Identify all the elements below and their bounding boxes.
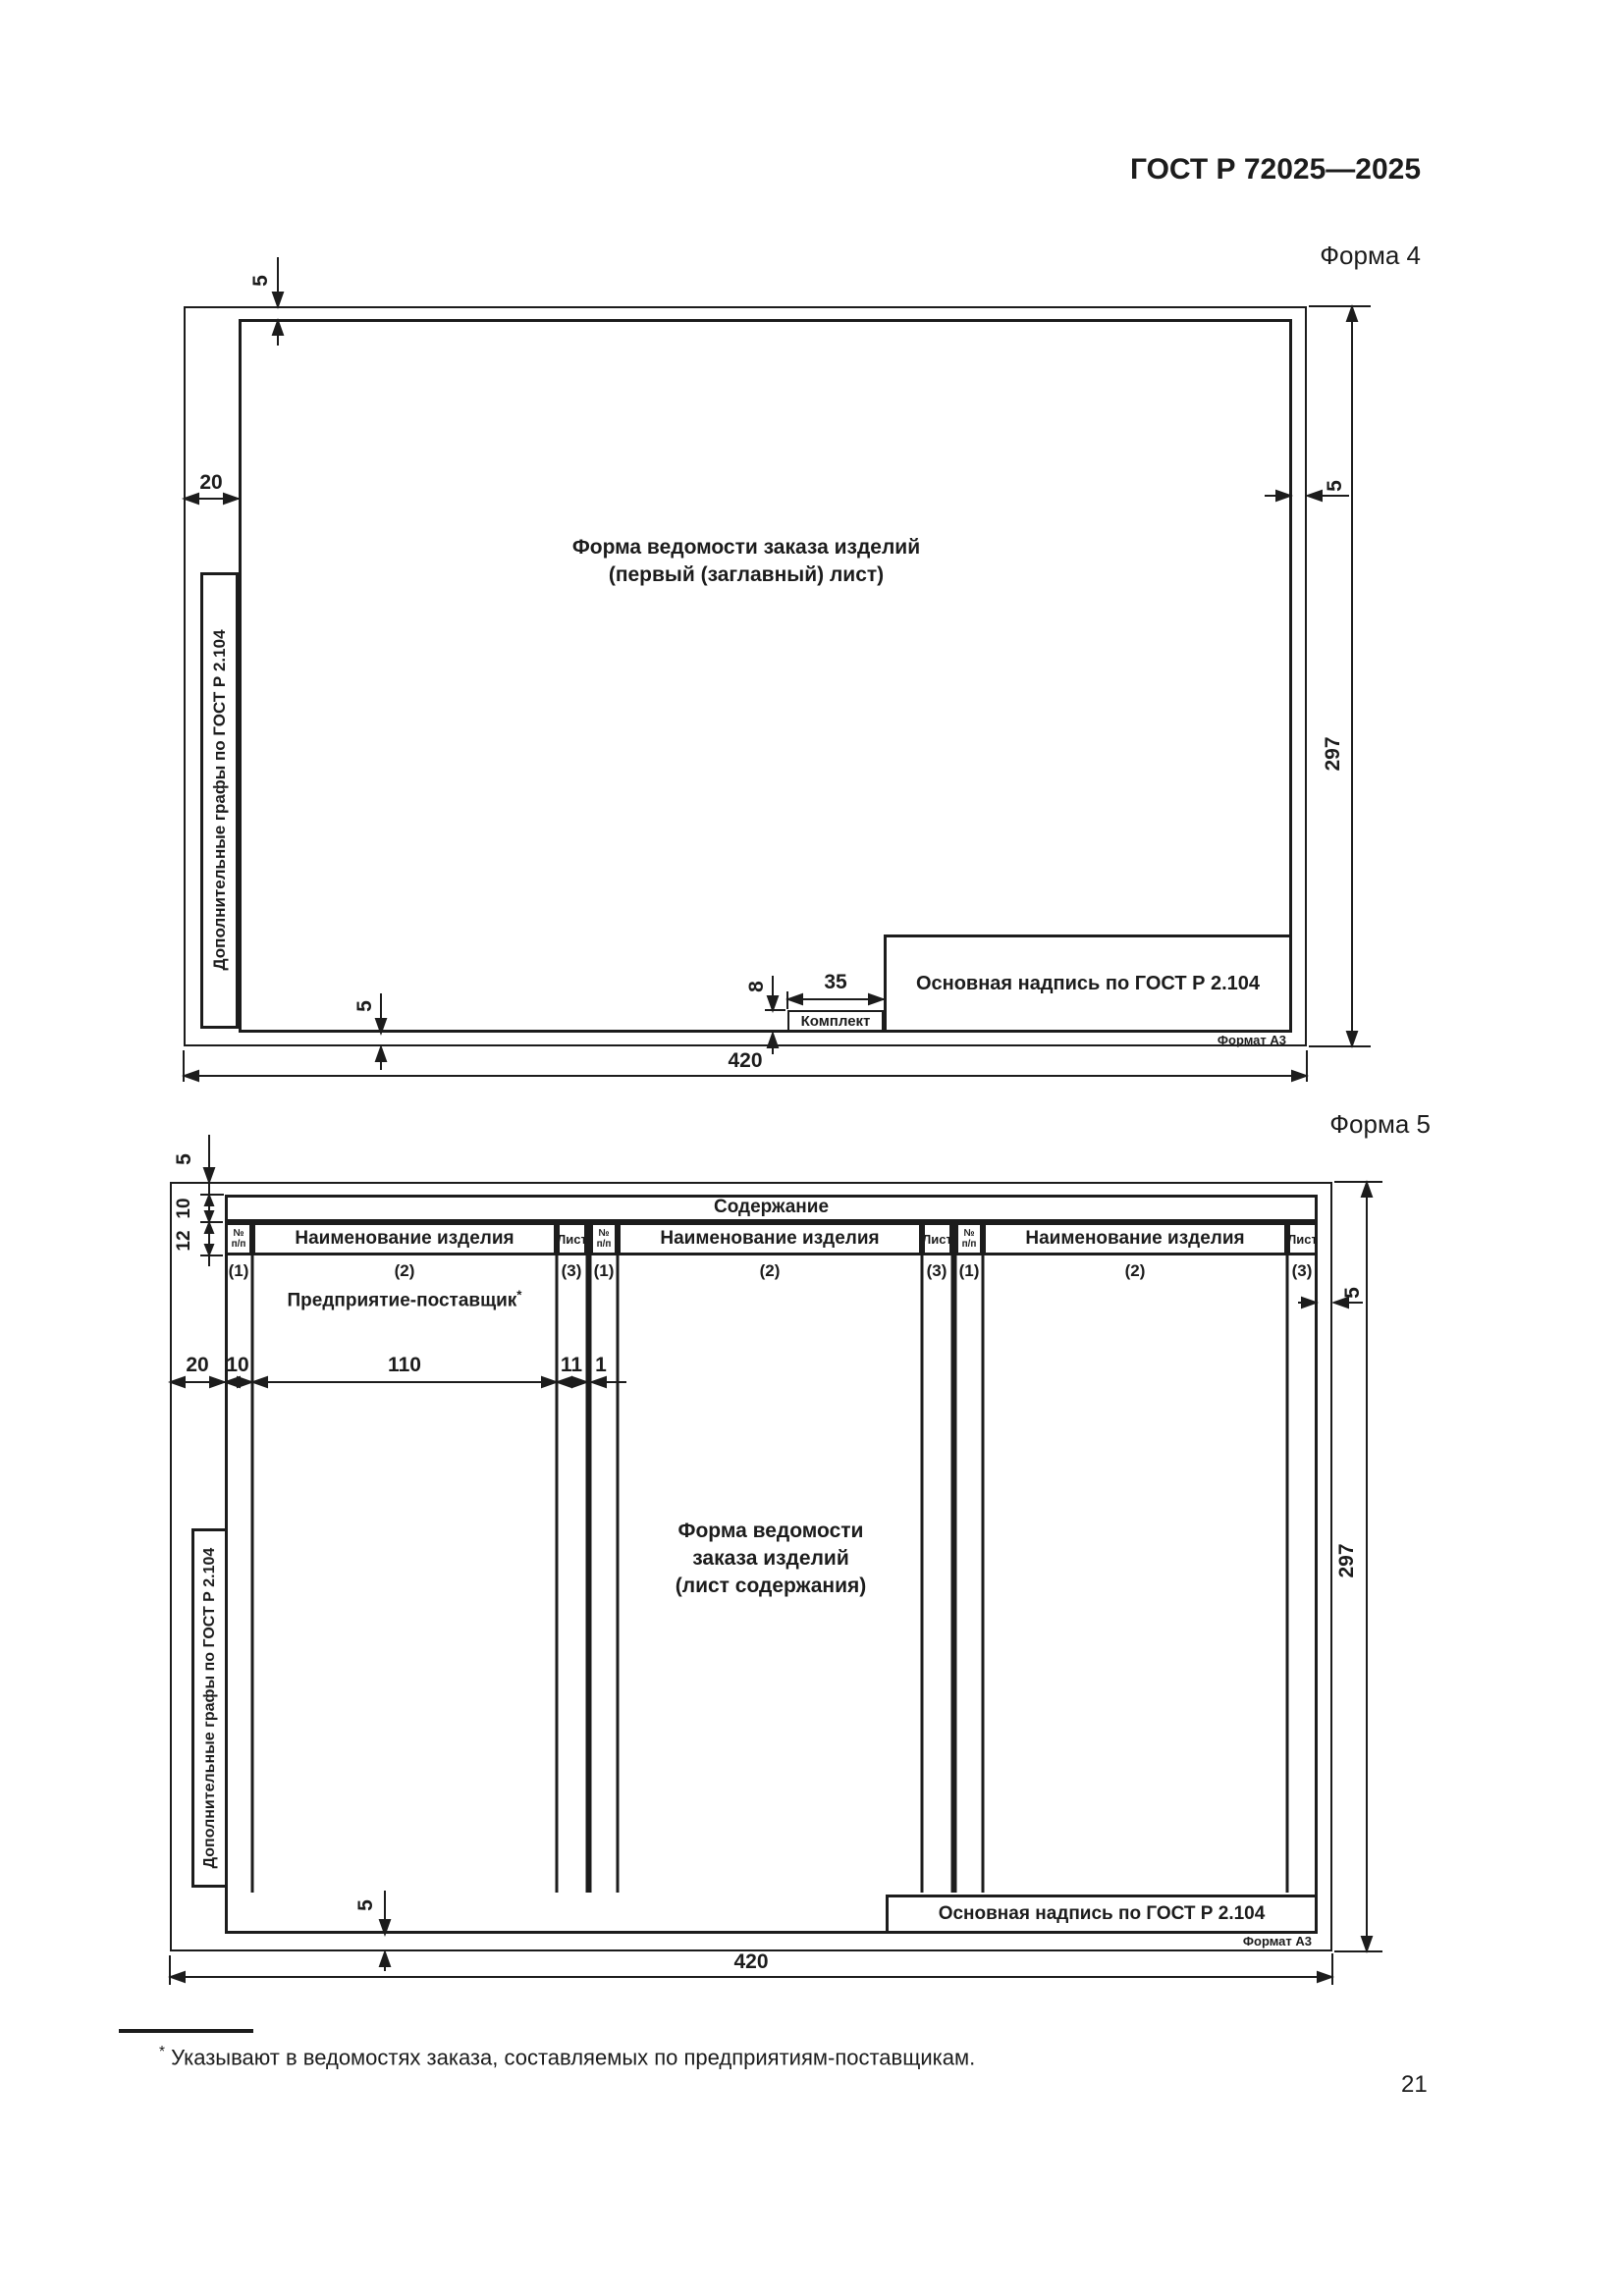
form5-column-lines — [252, 1222, 1287, 1893]
footnote-text: Указывают в ведомостях заказа, составляе… — [171, 2045, 975, 2069]
footnote: * Указывают в ведомостях заказа, составл… — [159, 2044, 975, 2070]
form5-dimension-lines — [170, 1135, 1382, 1985]
document-page: ГОСТ Р 72025—2025 Форма 4 Дополнительные… — [0, 0, 1624, 2296]
footnote-rule — [119, 2029, 253, 2033]
footnote-marker: * — [159, 2044, 165, 2060]
page-number: 21 — [1401, 2071, 1428, 2099]
dimension-graphics — [0, 0, 1624, 2296]
form4-dimension-lines — [184, 257, 1371, 1082]
